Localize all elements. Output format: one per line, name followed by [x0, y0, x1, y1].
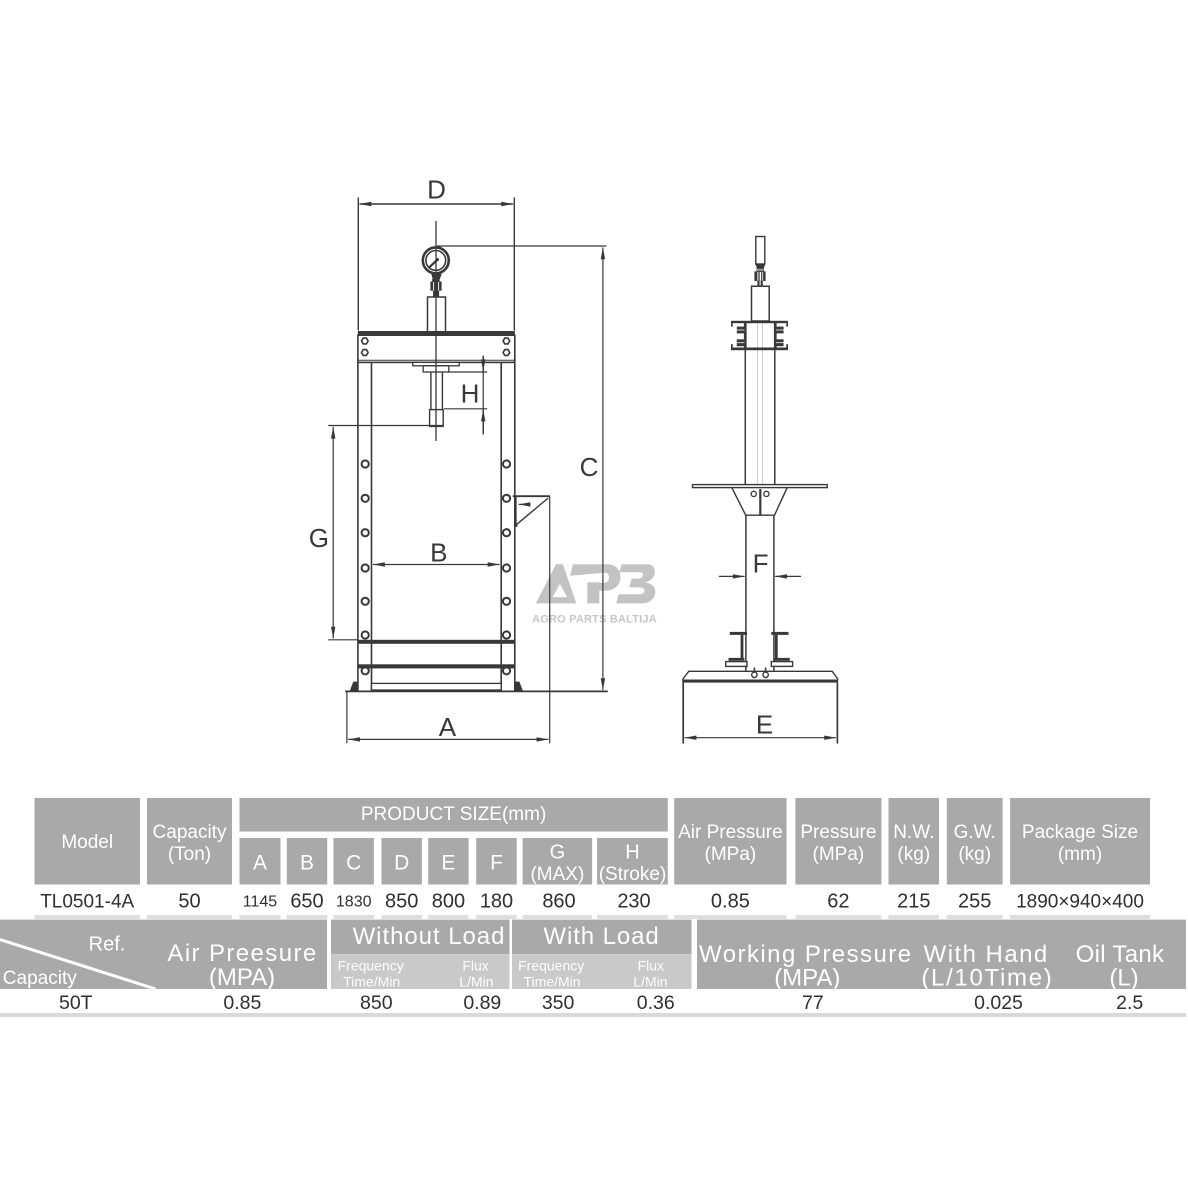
svg-text:(Ton): (Ton) — [168, 844, 211, 865]
svg-text:(MPa): (MPa) — [705, 844, 757, 865]
svg-text:850: 850 — [385, 891, 418, 913]
svg-text:Flux: Flux — [638, 958, 664, 974]
svg-text:180: 180 — [480, 891, 513, 913]
svg-text:860: 860 — [542, 891, 575, 913]
svg-text:1890×940×400: 1890×940×400 — [1016, 892, 1144, 913]
svg-text:Air Preesure: Air Preesure — [167, 940, 317, 967]
svg-text:B: B — [300, 852, 314, 875]
svg-text:800: 800 — [432, 891, 465, 913]
svg-text:2.5: 2.5 — [1116, 992, 1143, 1014]
svg-text:50: 50 — [178, 891, 200, 913]
svg-text:(MAX): (MAX) — [530, 864, 584, 885]
svg-text:E: E — [441, 852, 455, 875]
svg-text:D: D — [427, 175, 446, 205]
svg-text:(mm): (mm) — [1058, 844, 1102, 865]
svg-text:C: C — [580, 452, 599, 482]
svg-text:B: B — [430, 538, 447, 568]
svg-text:Flux: Flux — [462, 958, 488, 974]
svg-text:G: G — [309, 523, 329, 553]
svg-text:A: A — [439, 712, 457, 742]
svg-text:Model: Model — [61, 832, 113, 853]
svg-text:0.89: 0.89 — [463, 992, 501, 1014]
svg-text:L/Min: L/Min — [459, 974, 493, 990]
svg-text:255: 255 — [958, 891, 991, 913]
svg-text:G.W.: G.W. — [954, 822, 996, 843]
svg-text:1830: 1830 — [336, 894, 372, 911]
svg-text:F: F — [753, 549, 769, 579]
svg-text:(kg): (kg) — [897, 844, 930, 865]
svg-text:AGRO PARTS BALTIJA: AGRO PARTS BALTIJA — [532, 614, 657, 626]
svg-text:850: 850 — [360, 992, 393, 1014]
svg-text:0.025: 0.025 — [974, 992, 1023, 1014]
svg-text:D: D — [394, 852, 409, 875]
svg-text:H: H — [625, 842, 639, 864]
svg-text:(L): (L) — [1109, 965, 1138, 992]
svg-text:With Load: With Load — [543, 923, 659, 950]
svg-text:E: E — [756, 710, 773, 740]
svg-text:L/Min: L/Min — [633, 974, 667, 990]
svg-text:N.W.: N.W. — [893, 822, 934, 843]
svg-text:62: 62 — [827, 891, 849, 913]
svg-text:Pressure: Pressure — [800, 822, 876, 843]
svg-text:Frequency: Frequency — [338, 958, 404, 974]
svg-text:(kg): (kg) — [958, 844, 991, 865]
svg-text:Ref.: Ref. — [89, 934, 126, 956]
svg-text:77: 77 — [802, 992, 824, 1014]
svg-text:650: 650 — [290, 891, 323, 913]
svg-text:PRODUCT SIZE(mm): PRODUCT SIZE(mm) — [361, 804, 546, 825]
svg-text:H: H — [461, 379, 480, 409]
svg-text:Capacity: Capacity — [3, 968, 77, 989]
svg-text:230: 230 — [617, 891, 650, 913]
svg-text:350: 350 — [542, 992, 575, 1014]
svg-text:Frequency: Frequency — [518, 958, 584, 974]
svg-text:C: C — [346, 852, 361, 875]
svg-text:F: F — [490, 852, 503, 875]
svg-text:0.85: 0.85 — [223, 992, 261, 1014]
svg-text:1145: 1145 — [243, 894, 278, 911]
svg-text:TL0501-4A: TL0501-4A — [40, 892, 134, 913]
svg-text:0.36: 0.36 — [637, 992, 675, 1014]
svg-text:Air Pressure: Air Pressure — [678, 822, 783, 843]
svg-text:Capacity: Capacity — [153, 822, 227, 843]
svg-text:G: G — [550, 842, 566, 864]
svg-text:(L/10Time): (L/10Time) — [921, 965, 1053, 992]
svg-text:Time/Min: Time/Min — [343, 974, 400, 990]
svg-text:215: 215 — [897, 891, 930, 913]
svg-text:0.85: 0.85 — [711, 891, 750, 913]
svg-text:Time/Min: Time/Min — [523, 974, 580, 990]
svg-text:Package Size: Package Size — [1022, 822, 1138, 843]
svg-text:50T: 50T — [59, 992, 93, 1014]
svg-text:Without Load: Without Load — [353, 923, 506, 950]
svg-text:(Stroke): (Stroke) — [599, 864, 667, 885]
svg-text:(MPa): (MPa) — [813, 844, 865, 865]
svg-text:(MPA): (MPA) — [774, 965, 840, 992]
svg-text:(MPA): (MPA) — [209, 964, 275, 991]
svg-text:A: A — [253, 852, 267, 875]
